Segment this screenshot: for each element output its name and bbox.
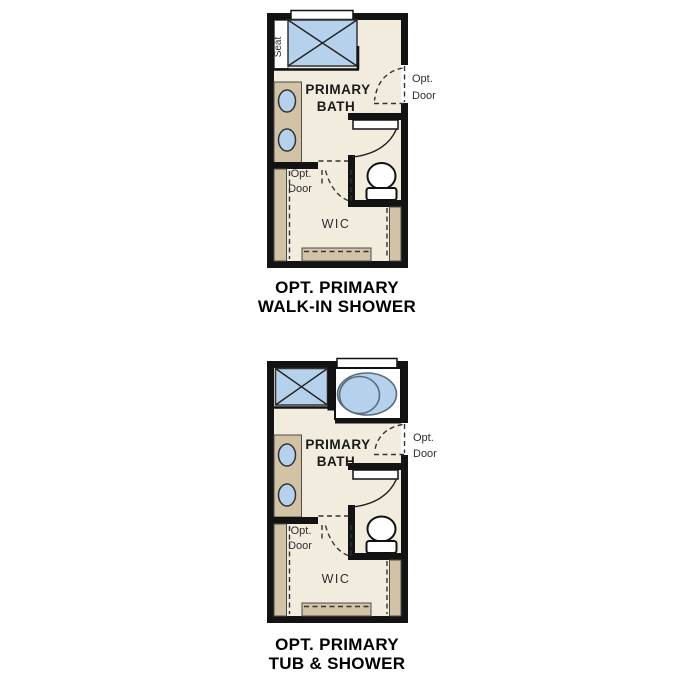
room-label-line1: PRIMARY <box>305 82 370 97</box>
wic-label: WIC <box>322 217 351 231</box>
closet-shelf <box>390 560 402 616</box>
wic-opt-door-label-line2: Door <box>288 540 312 552</box>
caption-line1: OPT. PRIMARY <box>275 635 399 654</box>
window-icon <box>291 11 353 20</box>
toilet-icon <box>367 163 397 200</box>
tub-icon <box>335 368 408 424</box>
room-label-line2: BATH <box>317 99 356 114</box>
window-icon <box>337 359 397 369</box>
shower-icon <box>274 361 335 411</box>
room-label-line1: PRIMARY <box>305 437 370 452</box>
caption-line2: TUB & SHOWER <box>269 654 406 673</box>
closet-shelf <box>302 603 371 616</box>
closet-shelf <box>390 207 402 261</box>
entry-opt-door-label-line1: Opt. <box>413 432 434 444</box>
walk-in-shower-icon: Seat <box>273 20 359 70</box>
vanity-icon <box>274 435 302 517</box>
vanity-icon <box>274 82 302 163</box>
plan-opt-primary-walk-in-shower: Seat Opt. Door <box>258 11 436 317</box>
closet-shelf <box>274 524 287 616</box>
closet-shelf <box>302 248 371 261</box>
entry-opt-door-label-line1: Opt. <box>412 73 433 85</box>
seat-label: Seat <box>273 36 284 57</box>
plan-caption: OPT. PRIMARY WALK-IN SHOWER <box>258 278 416 316</box>
caption-line1: OPT. PRIMARY <box>275 278 399 297</box>
door-leaf <box>353 470 398 479</box>
sink-icon <box>279 444 296 466</box>
sink-icon <box>279 484 296 506</box>
room-label-line2: BATH <box>317 454 356 469</box>
floor-plans-drawing: Seat Opt. Door <box>0 0 687 687</box>
door-leaf <box>353 120 398 129</box>
plan-caption: OPT. PRIMARY TUB & SHOWER <box>269 635 406 673</box>
sink-icon <box>279 90 296 112</box>
wic-opt-door-label-line2: Door <box>288 183 312 195</box>
wic-opt-door-label-line1: Opt. <box>291 525 312 537</box>
floor-plan-sheet: Seat Opt. Door <box>0 0 687 687</box>
closet-shelf <box>274 169 287 261</box>
entry-opt-door-label-line2: Door <box>412 90 436 102</box>
toilet-icon <box>367 517 397 554</box>
plan-opt-primary-tub-and-shower: Opt. Door PRIMARY BATH <box>267 359 437 674</box>
sink-icon <box>279 129 296 151</box>
wic-label: WIC <box>322 572 351 586</box>
entry-opt-door-label-line2: Door <box>413 448 437 460</box>
wic-opt-door-label-line1: Opt. <box>291 168 312 180</box>
caption-line2: WALK-IN SHOWER <box>258 297 416 316</box>
